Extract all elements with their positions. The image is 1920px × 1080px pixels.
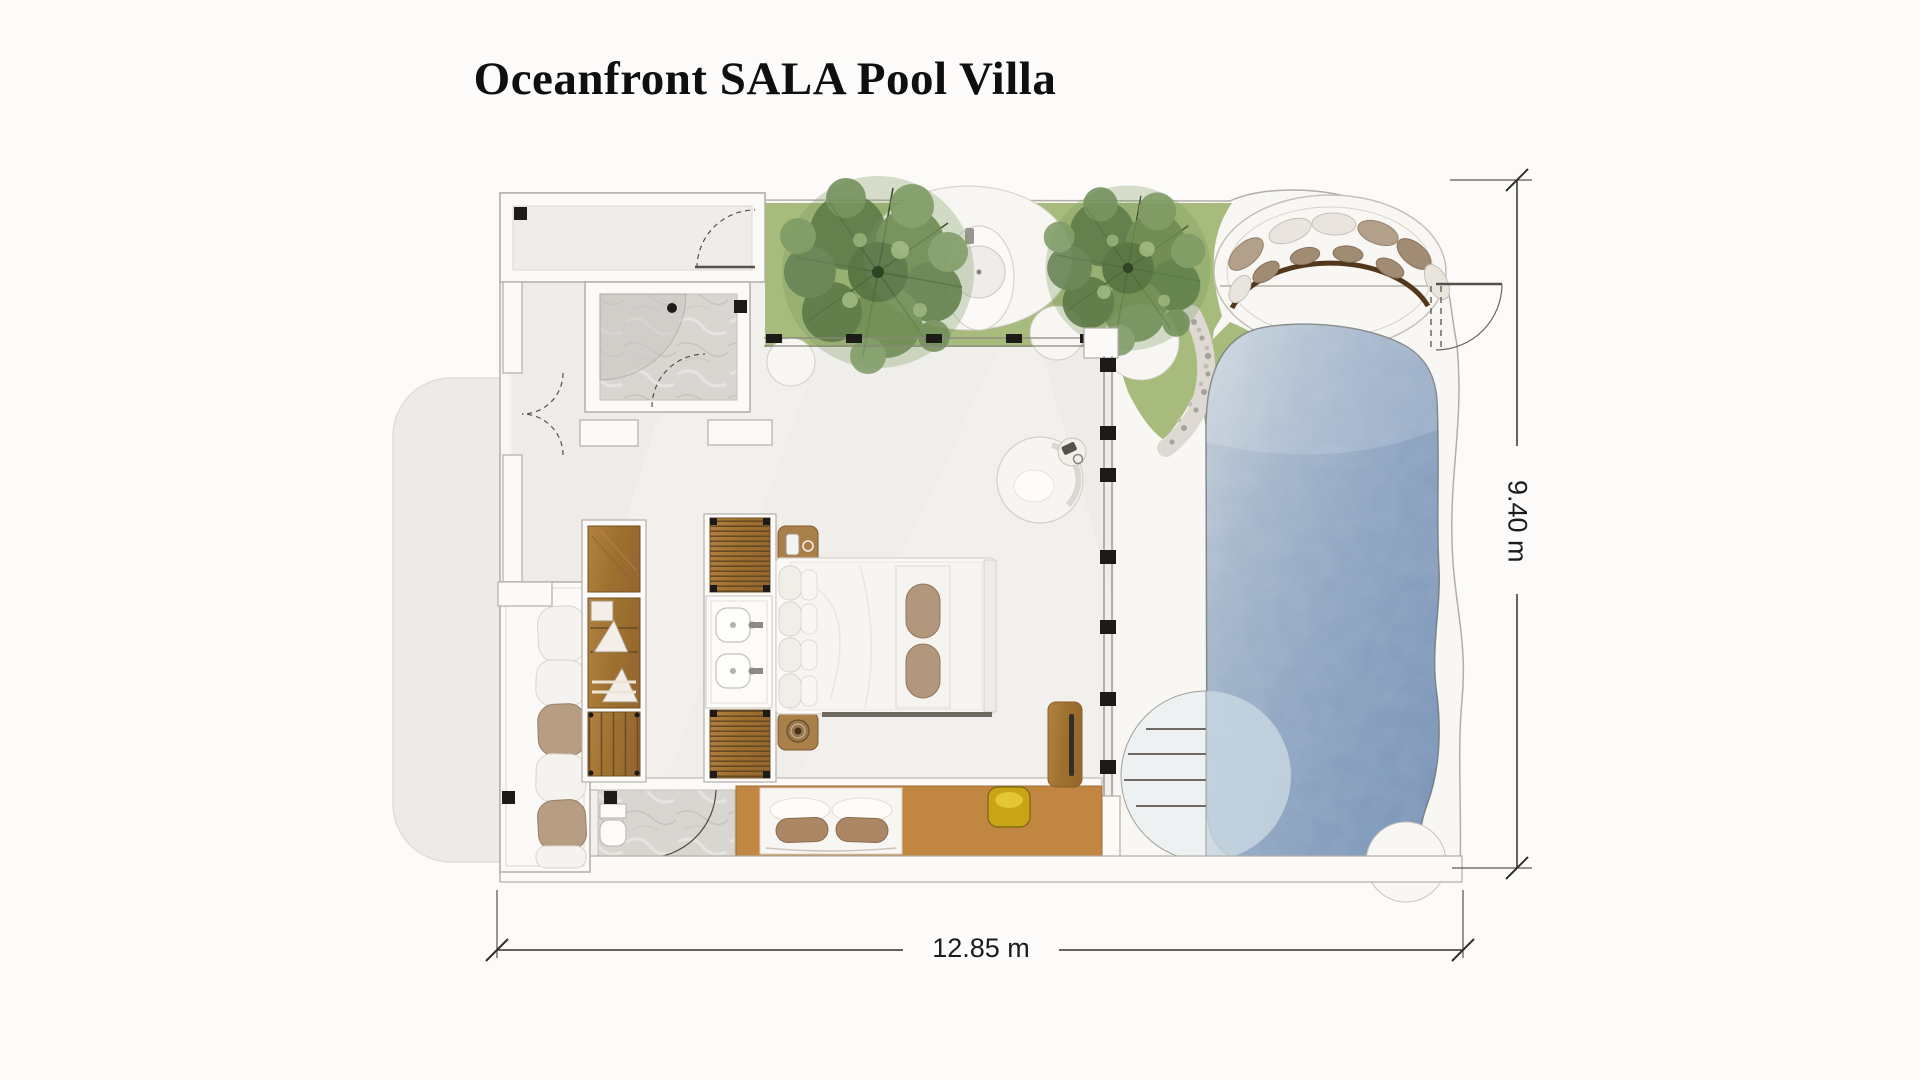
bed-bench [822,712,992,717]
sofa-bolster [836,817,889,843]
page-title: Oceanfront SALA Pool Villa [400,52,1130,106]
dimension-label-width: 12.85 m [905,933,1057,964]
wall-stub [708,420,772,445]
desk [1048,702,1082,787]
dimension-label-height: 9.40 m [1494,448,1540,594]
vanity [706,596,772,708]
column [734,300,747,313]
entrance-room [500,193,765,282]
wardrobe [582,520,646,782]
floor-drain [604,791,617,804]
floor-lamp [502,791,515,804]
wardrobe-hanging-section [588,598,640,708]
floor-plan-drawing [0,0,1920,1080]
shower-head-icon [667,303,677,313]
bed-pillow [906,644,940,698]
louver-panel [710,518,770,592]
outdoor-sofa-nook [736,786,1102,866]
floor-plan-page: Oceanfront SALA Pool Villa 9.40 m 12.85 … [0,0,1920,1080]
louver-panel [710,710,770,778]
stool [988,787,1030,827]
sofa-bolster [776,817,829,843]
pool-steps [1121,691,1291,861]
stepping-pad [767,338,815,386]
bed-pillow [906,584,940,638]
headboard [984,560,996,712]
vanity-wall [704,514,776,782]
bed [776,558,996,717]
column [514,207,527,220]
daybed [498,582,590,872]
daybed-cushions [535,605,587,868]
south-wall [500,856,1462,882]
wc-room [598,790,735,860]
toilet [600,820,626,846]
nightstand [778,712,818,750]
wc-fixture [600,804,626,818]
shower-room [585,282,750,412]
wall-stub [580,420,638,446]
